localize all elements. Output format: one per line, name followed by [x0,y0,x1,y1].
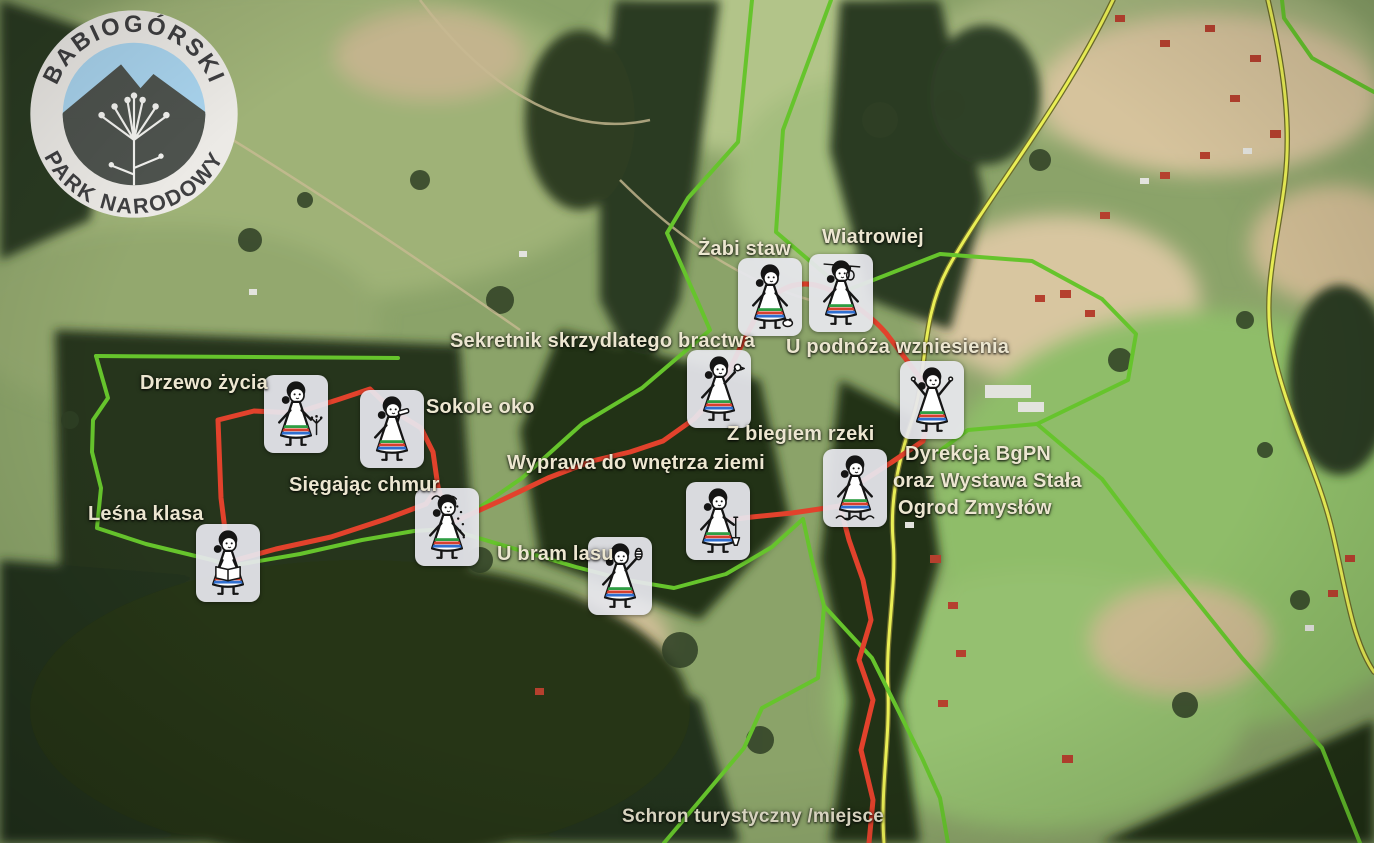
station-tile-wyprawa[interactable] [686,482,750,560]
station-tile-siegajac-chmur[interactable] [415,488,479,566]
station-tile-zabi-staw[interactable] [738,258,802,336]
station-label-wiatrowiej: Wiatrowiej [822,226,924,249]
pinecone-icon [635,548,642,559]
station-label-sokole-oko: Sokole oko [426,396,535,419]
park-logo: BABIOGÓRSKI PARK NARODOWY [26,6,242,222]
hq-label-line2: oraz Wystawa Stała [893,470,1082,493]
shovel-icon [732,517,739,545]
water-wave-icon [836,516,873,520]
trail-map-board: BABIOGÓRSKI PARK NARODOWY [0,0,1374,843]
station-tile-z-biegiem-rzeki[interactable] [823,449,887,527]
station-label-z-biegiem-rzeki: Z biegiem rzeki [727,423,875,446]
station-label-zabi-staw: Żabi staw [698,238,791,261]
station-label-wyprawa: Wyprawa do wnętrza ziemi [507,452,765,475]
station-label-lesna-klasa: Leśna klasa [88,503,204,526]
station-tile-u-podnoza-wzniesienia[interactable] [900,361,964,439]
station-label-u-podnoza: U podnóża wzniesienia [786,336,1009,359]
station-tile-drzewo-zycia[interactable] [264,375,328,453]
plant-sprig-icon [311,415,323,435]
hq-label-line1: Dyrekcja BgPN [905,443,1051,466]
book-icon [216,567,240,581]
station-label-sekretnik: Sekretnik skrzydlatego bractwa [450,330,755,353]
station-label-drzewo-zycia: Drzewo życia [140,372,268,395]
station-label-siegajac-chmur: Sięgając chmur [289,474,440,497]
station-tile-sokole-oko[interactable] [360,390,424,468]
station-tile-sekretnik[interactable] [687,350,751,428]
station-tile-lesna-klasa[interactable] [196,524,260,602]
shelter-footnote: Schron turystyczny /miejsce [622,806,884,828]
frog-icon [783,318,792,326]
station-label-u-bram-lasu: U bram lasu [497,543,614,566]
hq-label-line3: Ogrod Zmysłów [898,497,1052,520]
station-tile-wiatrowiej[interactable] [809,254,873,332]
